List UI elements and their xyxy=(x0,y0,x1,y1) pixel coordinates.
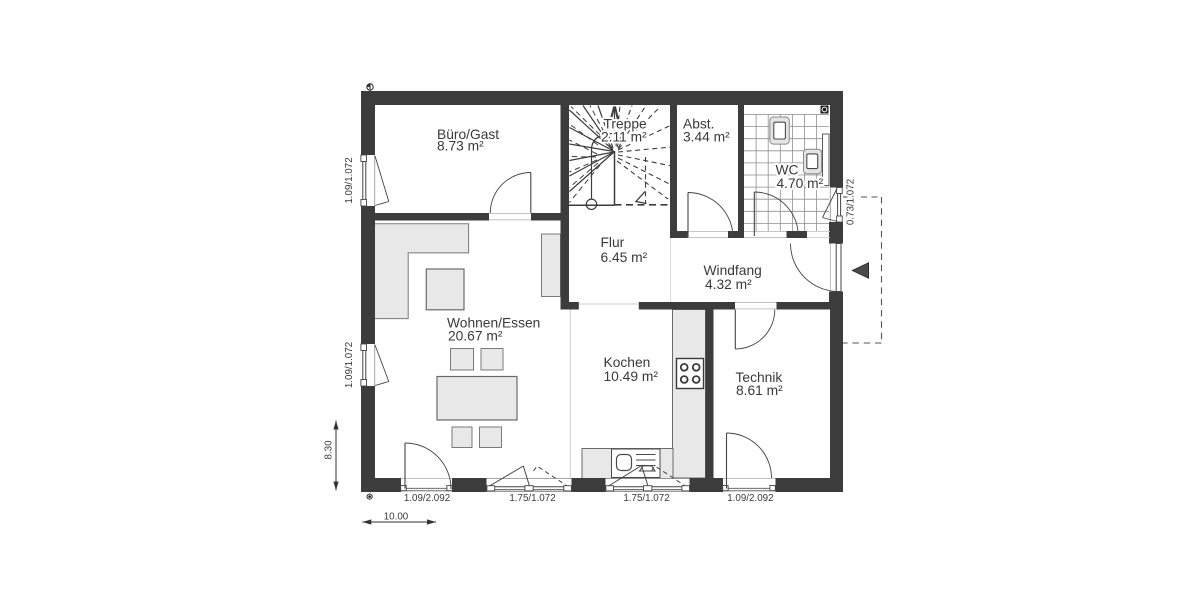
svg-text:4.32 m²: 4.32 m² xyxy=(705,277,752,292)
svg-text:1.09/1.072: 1.09/1.072 xyxy=(344,157,355,203)
svg-text:Flur: Flur xyxy=(601,235,625,250)
svg-text:3.44 m²: 3.44 m² xyxy=(683,130,730,145)
svg-text:1.09/1.072: 1.09/1.072 xyxy=(344,342,355,388)
svg-text:8.61 m²: 8.61 m² xyxy=(736,383,783,398)
svg-text:8.73 m²: 8.73 m² xyxy=(437,139,484,154)
svg-text:6.45 m²: 6.45 m² xyxy=(601,250,648,265)
svg-text:1.09/2.092: 1.09/2.092 xyxy=(727,493,773,504)
svg-text:8.30: 8.30 xyxy=(324,440,335,460)
svg-text:20.67 m²: 20.67 m² xyxy=(448,329,503,344)
svg-text:2.11 m²: 2.11 m² xyxy=(601,130,647,145)
svg-text:1.75/1.072: 1.75/1.072 xyxy=(509,493,555,504)
svg-text:1.09/2.092: 1.09/2.092 xyxy=(404,493,450,504)
svg-text:10.00: 10.00 xyxy=(384,512,409,523)
svg-text:Kochen: Kochen xyxy=(604,355,651,370)
svg-text:0.73/1.072: 0.73/1.072 xyxy=(846,179,857,225)
svg-text:1.75/1.072: 1.75/1.072 xyxy=(623,493,669,504)
svg-text:Windfang: Windfang xyxy=(704,263,762,278)
svg-text:10.49 m²: 10.49 m² xyxy=(604,369,659,384)
svg-text:4.70 m²: 4.70 m² xyxy=(777,176,824,191)
